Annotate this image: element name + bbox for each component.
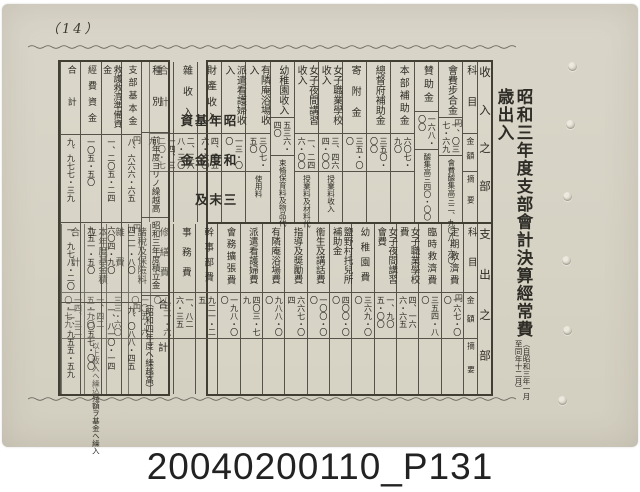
expense-entry-column-amount: 一〇〇・〇〇 [308, 292, 329, 338]
fund-column: 合計九、九七七・三九一、九七八・二〇一一、九五五・五九 [60, 62, 80, 394]
fund-column-reserve: 九五一・五〇 [81, 222, 100, 302]
expense-entry-column-amount: 四〇三・七九 [241, 292, 262, 338]
expense-entry-column-item: 有隣庵浴場費 [263, 224, 284, 292]
punch-mark [558, 396, 567, 405]
header-item: 科目 [463, 62, 477, 133]
income-entry-column-note [343, 171, 366, 222]
fund-column: 支部基本金八、六六六・六五円四二一・八〇円九、〇八八・四五円 [121, 62, 141, 394]
period-to: 至同年十二月） [514, 340, 522, 400]
income-entry-column-note: 授業料收入 [319, 171, 342, 222]
income-entry-column-amount: 六〇七・九〇 [391, 133, 414, 171]
document-title: 昭和三年度支部會計決算經常費歳出入 [494, 88, 532, 340]
expense-entry-column-note [218, 338, 239, 394]
fund-column-carryover: 一〇五・五〇 [81, 134, 100, 222]
header-carryover: 前年度ヨリノ繰越高 [142, 132, 168, 217]
expense-entry-column-note [397, 338, 418, 394]
yen-marker: 円 [133, 304, 141, 314]
expense-entry-column-amount: 四〇〇・〇〇 [330, 292, 351, 338]
accounting-table: 收入之部 科目 金額 摘要 會費步合金一、〇三七・六九円會費醵集高三二、九〇八・… [206, 60, 493, 396]
header-item: 科目 [464, 224, 477, 292]
fund-column-carryover: 九、九七七・三九 [61, 134, 80, 222]
fund-column-name: 救護救濟準備資金 [102, 62, 121, 134]
punch-mark [566, 120, 575, 129]
image-id-caption: 20040200110_P131 [0, 446, 640, 488]
income-entry-column: 幼稚園收入五三六・四〇束脩保育料及物品代 [270, 62, 294, 222]
expense-entry-column-note [174, 338, 195, 394]
income-entry-column-item: 有隣庵浴場收入 [246, 62, 269, 133]
income-entry-column-amount: 三〇七・五〇 [246, 133, 269, 171]
expense-entry-column-item: 指導及奬勵費 [285, 224, 306, 292]
fund-column: 救護救濟準備資金一、二〇五・二四六〇四・九〇一、八一〇・一四 [101, 62, 121, 394]
income-entry-column: 有隣庵浴場收入三〇七・五〇使用料 [245, 62, 269, 222]
income-entry-column: 會費步合金一、〇三七・六九円會費醵集高三二、九〇八・六〇 [438, 62, 462, 222]
page-number: （14） [46, 18, 101, 37]
income-entry-column-amount: 三五〇・〇〇 [367, 133, 390, 171]
expense-entry-column: 女子夜間講習會費一、九〇五・〇〇 [374, 224, 396, 394]
expense-entry-column: 有隣庵浴場費九八八・〇〇 [262, 224, 284, 394]
expense-entry-column-item: 派遣看護婦費 [241, 224, 262, 292]
income-entry-column-item: 寄附金 [343, 62, 366, 133]
fund-column-total: 九、〇八八・四五円 [122, 302, 141, 394]
wavy-rule-top [28, 44, 516, 50]
expense-entry-column-note [285, 338, 306, 394]
fund-column-reserve: 一、九七八・二〇 [61, 222, 80, 302]
income-entry-column-note: 授業料及材料代 [295, 171, 318, 230]
expense-entry-column-amount: 一、九〇五・〇〇 [375, 292, 396, 338]
header-note: 摘要 [463, 171, 477, 222]
expense-band-label: 支出之部 [477, 224, 491, 394]
expense-header-column: 科目 金額 摘要 [463, 224, 477, 394]
funds-table-title: 昭和三年度末基金及資金 [178, 114, 236, 254]
expense-band: 支出之部 科目 金額 摘要 定期救濟費一六七・〇〇円臨時救濟費三五四・八〇女子職… [208, 222, 491, 394]
expense-entry-column-note [241, 338, 262, 394]
header-amount: 金額 [463, 133, 477, 171]
expense-entry-column-item: 幼稚園費 [352, 224, 373, 292]
expense-entry-column-amount: 三六九・〇〇 [352, 292, 373, 338]
income-header-column: 科目 金額 摘要 [462, 62, 477, 222]
income-entry-column-note: 束脩保育料及物品代 [271, 155, 294, 229]
income-entry-column-amount: 三、四六四・〇〇 [319, 133, 342, 171]
income-entry-column-item: 賛助金 [415, 62, 438, 111]
expense-entry-column-item: 女子職業學校費 [397, 224, 418, 292]
income-entry-column-item: 總督府補助金 [367, 62, 390, 133]
header-note: 摘要 [464, 338, 477, 394]
fund-column-carryover: 八、六六六・六五円 [122, 134, 141, 222]
income-entry-column-note [367, 171, 390, 222]
expense-entry-column-note [419, 338, 440, 394]
expense-entry-column-note [330, 338, 351, 394]
income-entry-column-amount: 一六八・〇〇 [415, 111, 438, 149]
expense-entry-column-amount: 一六七・〇〇円 [442, 292, 463, 338]
funds-header-column: 種別 前年度ヨリノ繰越高 昭和三年度積立金 合計 （昭和四年度ヘ繰越高） [141, 62, 168, 394]
fund-column-reserve: 四二一・八〇円 [122, 222, 141, 302]
expense-entry-column-amount: 三五四・八〇 [419, 292, 440, 338]
income-entry-column-amount: 一、二四六・〇〇 [295, 133, 318, 171]
expense-entry-column-item: 女子夜間講習會費 [375, 224, 396, 292]
expense-entry-column-note [375, 338, 396, 394]
punch-mark [568, 62, 577, 71]
income-entry-column-note [391, 171, 414, 222]
fund-column-total: 一一、九五五・五九 [61, 302, 80, 394]
expense-entry-column: 定期救濟費一六七・〇〇円 [441, 224, 463, 394]
expense-entry-column-amount: 九二一・二五 [196, 292, 217, 338]
expense-entry-column-item: 臨時救濟費 [419, 224, 440, 292]
funds-table: 種別 前年度ヨリノ繰越高 昭和三年度積立金 合計 （昭和四年度ヘ繰越高） 支部基… [58, 60, 170, 396]
expense-entry-column: 衞生及講話費一〇〇・〇〇 [307, 224, 329, 394]
income-entry-column-note: 使用料 [246, 171, 269, 222]
fund-column-name: 支部基本金 [122, 62, 141, 134]
income-entry-column: 本部補助金六〇七・九〇 [390, 62, 414, 222]
fund-column-name: 合計 [61, 62, 80, 134]
income-entry-column-amount: 一、〇三七・六九円 [439, 117, 462, 155]
income-entry-column-item: 女子夜間講習收入 [295, 62, 318, 133]
expense-entry-column: 派遣看護婦費四〇三・七九 [240, 224, 262, 394]
expense-entry-column-note [263, 338, 284, 394]
fund-column-total: 一、〇五七・〇〇 [81, 302, 100, 394]
expense-entry-column-item: 定期救濟費 [442, 224, 463, 292]
document-title-period: （自昭和三年一月 至同年十二月） [514, 340, 530, 400]
header-amount: 金額 [464, 292, 477, 338]
expense-entry-column-note [442, 338, 463, 394]
punch-mark [562, 256, 571, 265]
income-entry-column: 寄附金三五・〇〇 [342, 62, 366, 222]
income-entry-column: 賛助金一六八・〇〇醵集高三四〇・〇〇 [414, 62, 438, 222]
income-entry-column-note: 醵集高三四〇・〇〇 [415, 149, 438, 223]
expense-entry-column-item: 衞生及講話費 [308, 224, 329, 292]
header-kind: 種別 [142, 62, 168, 132]
funds-columns: 支部基本金八、六六六・六五円四二一・八〇円九、〇八八・四五円救護救濟準備資金一、… [60, 62, 141, 394]
punch-mark [563, 192, 572, 201]
income-entry-column-amount: 五三六・四〇 [271, 117, 294, 155]
fund-column-reserve: 六〇四・九〇 [102, 222, 121, 302]
header-total: 合計 （昭和四年度ヘ繰越高） [142, 295, 168, 395]
yen-marker: 円 [133, 136, 141, 146]
period-from: （自昭和三年一月 [522, 340, 530, 400]
header-reserve: 昭和三年度積立金 [142, 217, 168, 295]
income-entry-column-amount: 三五・〇〇 [343, 133, 366, 171]
income-entry-column-item: 幼稚園收入 [271, 62, 294, 117]
punch-mark [563, 326, 572, 335]
income-entry-column-item: 女子職業學校收入 [319, 62, 342, 133]
income-band-label: 收入之部 [477, 62, 491, 222]
document-title-block: 昭和三年度支部會計決算經常費歳出入 （自昭和三年一月 至同年十二月） [502, 88, 532, 400]
fund-column-carryover: 一、二〇五・二四 [102, 134, 121, 222]
expense-entry-column-note [308, 338, 329, 394]
expense-entry-column-amount: 四、一六六・六五 [397, 292, 418, 338]
yen-marker: 円 [454, 119, 462, 129]
expense-entry-column-item: 鹽野村托兒所補助金 [330, 224, 351, 292]
expense-entry-column-amount: 六六七・〇四 [285, 292, 306, 338]
income-entry-column: 女子職業學校收入三、四六四・〇〇授業料收入 [318, 62, 342, 222]
yen-marker: 円 [455, 294, 463, 304]
expense-entry-column-note [196, 338, 217, 394]
income-entry-column-item: 會費步合金 [439, 62, 462, 117]
expense-entry-column: 鹽野村托兒所補助金四〇〇・〇〇 [329, 224, 351, 394]
income-entry-column-item: 本部補助金 [391, 62, 414, 133]
expense-entry-column-amount: 九八八・〇〇 [263, 292, 284, 338]
income-entry-column: 女子夜間講習收入一、二四六・〇〇授業料及材料代 [294, 62, 318, 222]
income-band: 收入之部 科目 金額 摘要 會費步合金一、〇三七・六九円會費醵集高三二、九〇八・… [208, 62, 491, 222]
expense-entry-column: 女子職業學校費四、一六六・六五 [396, 224, 418, 394]
scan-page: （14） 昭和三年度支部會計決算經常費歳出入 （自昭和三年一月 至同年十二月） … [0, 0, 640, 492]
fund-column-total: 一、八一〇・一四 [102, 302, 121, 394]
paper: （14） 昭和三年度支部會計決算經常費歳出入 （自昭和三年一月 至同年十二月） … [2, 4, 638, 447]
expense-entry-column: 幼稚園費三六九・〇〇 [351, 224, 373, 394]
fund-column-name: 經費資金 [81, 62, 100, 134]
expense-entry-column-amount: 一、八二六・三五 [174, 292, 195, 338]
expense-entry-column: 指導及奬勵費六六七・〇四 [284, 224, 306, 394]
yen-marker: 円 [133, 224, 141, 234]
expense-entry-column-note [352, 338, 373, 394]
income-entry-column: 總督府補助金三五〇・〇〇 [366, 62, 390, 222]
expense-entry-column-amount: 一九八・〇〇 [218, 292, 239, 338]
expense-entry-column: 臨時救濟費三五四・八〇 [418, 224, 440, 394]
fund-column: 經費資金一〇五・五〇九五一・五〇一、〇五七・〇〇 [80, 62, 100, 394]
